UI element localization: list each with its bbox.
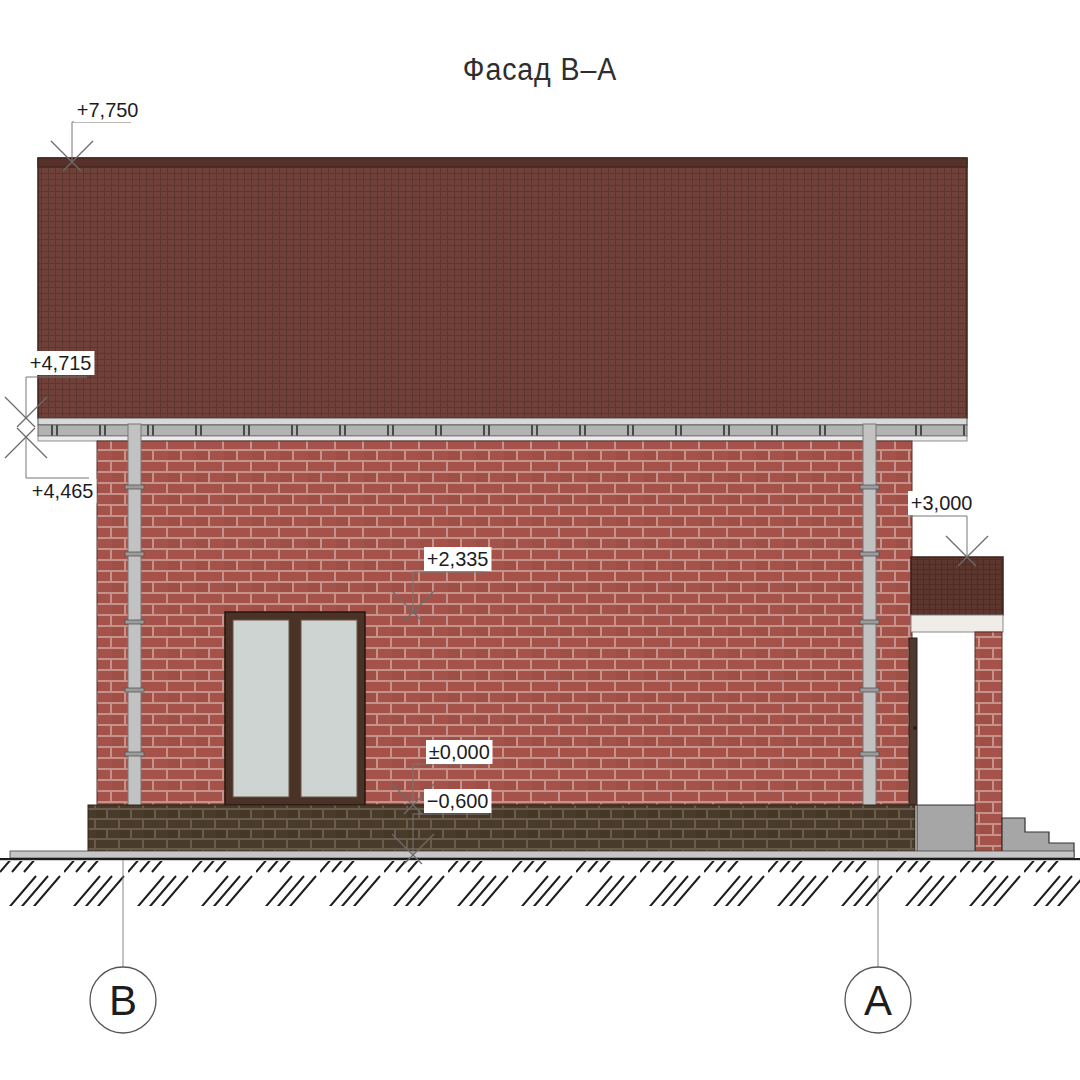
window-glass-left	[233, 620, 289, 797]
main-wall	[97, 441, 912, 805]
level-label-ridge: +7,750	[74, 98, 141, 122]
level-label-window-head: +2,335	[424, 547, 491, 571]
door-handle	[913, 726, 917, 730]
elevation-graphics: В А	[0, 0, 1080, 1080]
blind-area	[10, 851, 1074, 858]
porch-roof	[911, 557, 1003, 615]
level-label-eaves-top: +4,715	[27, 351, 94, 375]
ground	[0, 851, 1080, 906]
porch	[909, 557, 1074, 857]
downpipe-left	[125, 424, 144, 824]
plinth	[88, 805, 915, 857]
facade-drawing: Фасад В–А	[0, 0, 1080, 1080]
level-label-porch-roof: +3,000	[908, 491, 975, 515]
window-glass-right	[301, 620, 357, 797]
soffit-brackets	[40, 425, 965, 436]
ground-hatch	[0, 861, 1080, 906]
eaves-assembly	[38, 418, 967, 441]
porch-slab	[917, 805, 975, 857]
roof-ridge-cap	[38, 158, 967, 167]
downpipe-right	[860, 424, 879, 824]
porch-fascia	[911, 615, 1003, 632]
porch-pillar	[975, 632, 1002, 857]
window	[225, 612, 365, 805]
fascia-strip	[38, 436, 967, 441]
level-label-floor: ±0,000	[426, 740, 493, 764]
axis-label-a: А	[864, 977, 892, 1024]
main-roof	[38, 158, 967, 418]
entrance-door-edge	[909, 638, 917, 805]
level-label-ground: −0,600	[424, 789, 491, 813]
level-label-eaves-bottom: +4,465	[29, 479, 96, 503]
ground-line	[0, 858, 1080, 860]
gutter	[38, 418, 967, 425]
axis-label-b: В	[109, 977, 137, 1024]
